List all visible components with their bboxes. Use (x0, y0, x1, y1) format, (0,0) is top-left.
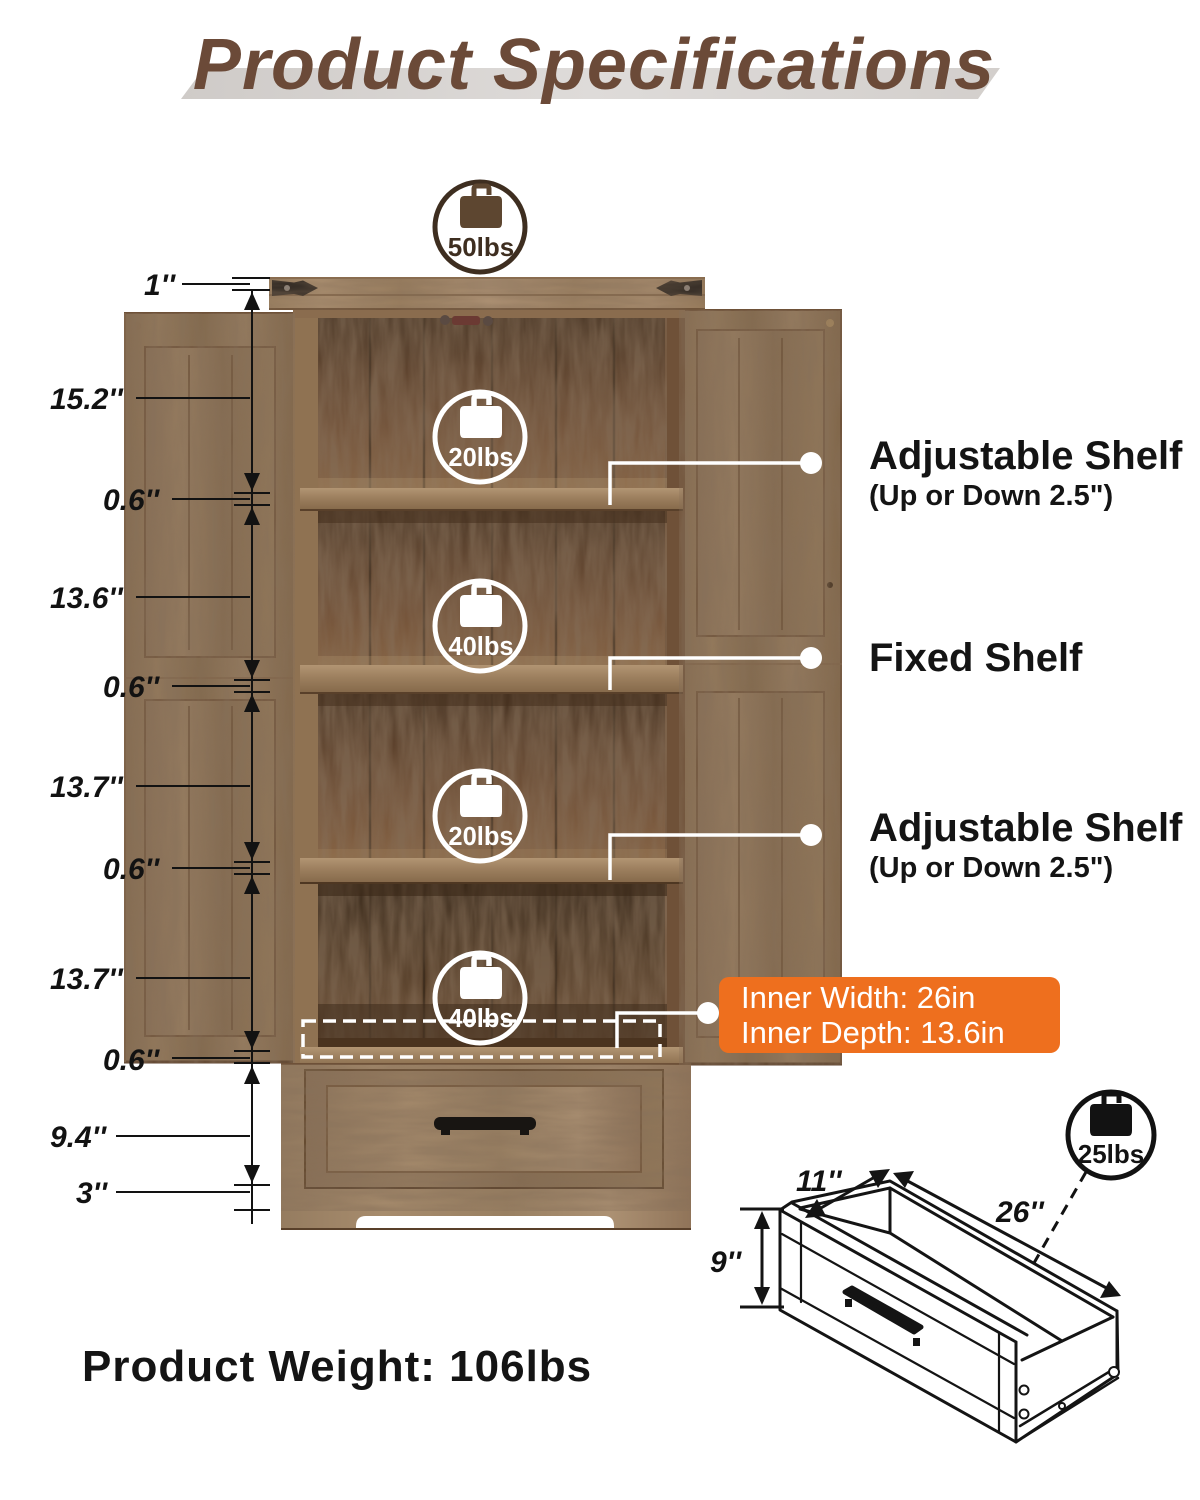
svg-text:0.6'': 0.6'' (103, 853, 160, 886)
svg-text:9.4'': 9.4'' (50, 1121, 107, 1154)
svg-text:0.6'': 0.6'' (103, 671, 160, 704)
svg-text:13.7'': 13.7'' (50, 963, 124, 996)
svg-text:Adjustable Shelf: Adjustable Shelf (869, 806, 1183, 850)
svg-text:20lbs: 20lbs (448, 444, 513, 472)
svg-text:40lbs: 40lbs (448, 633, 513, 661)
svg-text:1'': 1'' (144, 269, 176, 302)
svg-text:Product Weight: 106lbs: Product Weight: 106lbs (82, 1342, 592, 1391)
svg-text:50lbs: 50lbs (448, 232, 515, 262)
svg-text:Inner Width: 26in: Inner Width: 26in (741, 980, 975, 1015)
svg-text:Product Specifications: Product Specifications (193, 25, 995, 105)
svg-text:11'': 11'' (796, 1165, 842, 1198)
svg-text:26'': 26'' (995, 1196, 1045, 1229)
svg-text:9'': 9'' (710, 1246, 742, 1279)
svg-text:0.6'': 0.6'' (103, 1044, 160, 1077)
svg-text:13.7'': 13.7'' (50, 771, 124, 804)
svg-text:(Up or Down 2.5"): (Up or Down 2.5") (869, 480, 1113, 512)
svg-text:(Up or Down 2.5"): (Up or Down 2.5") (869, 852, 1113, 884)
svg-text:25lbs: 25lbs (1078, 1139, 1145, 1169)
svg-text:Adjustable Shelf: Adjustable Shelf (869, 434, 1183, 478)
svg-text:13.6'': 13.6'' (50, 582, 124, 615)
svg-text:Fixed Shelf: Fixed Shelf (869, 636, 1083, 680)
svg-text:0.6'': 0.6'' (103, 484, 160, 517)
svg-text:3'': 3'' (76, 1177, 108, 1210)
svg-text:Inner Depth: 13.6in: Inner Depth: 13.6in (741, 1015, 1005, 1050)
svg-text:20lbs: 20lbs (448, 823, 513, 851)
svg-text:40lbs: 40lbs (448, 1005, 513, 1033)
svg-text:15.2'': 15.2'' (50, 383, 124, 416)
